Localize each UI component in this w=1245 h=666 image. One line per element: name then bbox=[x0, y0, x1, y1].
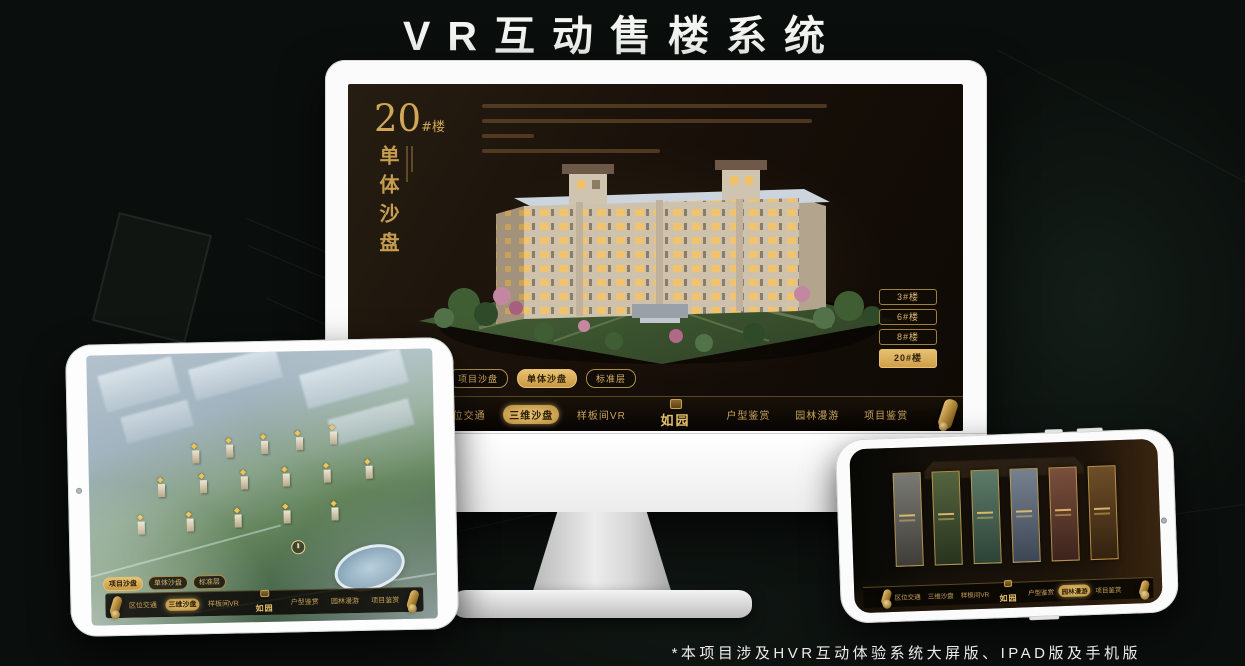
nav-item-showroom-vr[interactable]: 样板间VR bbox=[205, 597, 242, 610]
nav-item-unit-plans[interactable]: 户型鉴赏 bbox=[288, 596, 322, 609]
phone-screen: 区位交通 三维沙盘 样板间VR 如园 户型鉴赏 园林漫游 项目鉴赏 bbox=[849, 439, 1163, 614]
nav-item-3d-sandtable[interactable]: 三维沙盘 bbox=[503, 405, 559, 424]
floor-button-6[interactable]: 6#楼 bbox=[879, 309, 937, 325]
seal-icon bbox=[1004, 580, 1012, 587]
scroll-icon[interactable] bbox=[1138, 579, 1150, 597]
monitor-stand-base bbox=[452, 590, 752, 618]
brand-logo-text: 如园 bbox=[255, 603, 273, 613]
block-suffix: #楼 bbox=[421, 120, 445, 135]
nav-group-left: 区位交通 三维沙盘 样板间VR bbox=[890, 588, 993, 604]
gallery-card[interactable] bbox=[1010, 468, 1041, 563]
seal-icon bbox=[670, 399, 682, 409]
nav-group-left: 区位交通 三维沙盘 样板间VR bbox=[120, 597, 247, 612]
phone-power-button bbox=[1029, 615, 1059, 620]
phone-device: 区位交通 三维沙盘 样板间VR 如园 户型鉴赏 园林漫游 项目鉴赏 bbox=[835, 428, 1179, 624]
monitor-stand-neck bbox=[532, 512, 672, 594]
gallery-card[interactable] bbox=[1087, 465, 1118, 560]
nav-item-project-gallery[interactable]: 项目鉴赏 bbox=[858, 405, 914, 424]
nav-item-showroom-vr[interactable]: 样板间VR bbox=[958, 588, 993, 601]
nav-item-garden-tour[interactable]: 园林漫游 bbox=[328, 595, 362, 608]
gallery-card[interactable] bbox=[1048, 467, 1079, 562]
brand-logo-text: 如园 bbox=[999, 593, 1017, 604]
tablet-device: 项目沙盘 单体沙盘 标准层 区位交通 三维沙盘 样板间VR 如园 户型鉴赏 园林… bbox=[65, 337, 459, 637]
brand-logo-text: 如园 bbox=[660, 414, 690, 429]
nav-item-garden-tour[interactable]: 园林漫游 bbox=[1058, 584, 1090, 597]
poster-stage: VR互动售楼系统 20#楼 单体沙盘 bbox=[0, 0, 1245, 666]
gallery-card[interactable] bbox=[971, 469, 1002, 564]
phone-volume-button bbox=[1077, 428, 1103, 433]
floor-button-group: 3#楼 6#楼 8#楼 20#楼 bbox=[879, 289, 937, 368]
tab-standard-floor[interactable]: 标准层 bbox=[586, 369, 636, 388]
nav-group-right: 户型鉴赏 园林漫游 项目鉴赏 bbox=[708, 405, 928, 424]
block-vertical-title: 单体沙盘 bbox=[374, 145, 403, 263]
tab-standard-floor[interactable]: 标准层 bbox=[193, 575, 226, 590]
nav-item-3d-sandtable[interactable]: 三维沙盘 bbox=[165, 598, 199, 611]
nav-group-left: 区位交通 三维沙盘 样板间VR bbox=[424, 405, 644, 424]
camera-icon bbox=[76, 488, 82, 494]
phone-volume-button bbox=[1045, 429, 1063, 434]
floor-button-8[interactable]: 8#楼 bbox=[879, 329, 937, 345]
background-plaque bbox=[92, 212, 212, 344]
nav-group-right: 户型鉴赏 园林漫游 项目鉴赏 bbox=[281, 594, 408, 609]
tab-project-sandtable[interactable]: 项目沙盘 bbox=[448, 369, 508, 388]
floor-button-3[interactable]: 3#楼 bbox=[879, 289, 937, 305]
tablet-screen: 项目沙盘 单体沙盘 标准层 区位交通 三维沙盘 样板间VR 如园 户型鉴赏 园林… bbox=[86, 348, 438, 625]
nav-item-garden-tour[interactable]: 园林漫游 bbox=[789, 405, 845, 424]
footnote: *本项目涉及HVR互动体验系统大屏版、IPAD版及手机版 bbox=[672, 642, 1141, 663]
scene-gallery bbox=[893, 465, 1119, 567]
view-tab-group: 项目沙盘 单体沙盘 标准层 bbox=[448, 369, 636, 388]
scroll-icon[interactable] bbox=[937, 398, 960, 431]
nav-item-showroom-vr[interactable]: 样板间VR bbox=[571, 405, 632, 424]
block-number: 20 bbox=[374, 97, 421, 140]
tab-project-sandtable[interactable]: 项目沙盘 bbox=[103, 577, 143, 592]
tab-single-sandtable[interactable]: 单体沙盘 bbox=[148, 576, 188, 591]
nav-item-location[interactable]: 区位交通 bbox=[891, 590, 923, 603]
building-model-illustration bbox=[404, 136, 909, 376]
camera-icon bbox=[1161, 517, 1167, 523]
nav-item-project-gallery[interactable]: 项目鉴赏 bbox=[368, 594, 402, 607]
brand-logo[interactable]: 如园 bbox=[993, 579, 1024, 606]
page-title: VR互动售楼系统 bbox=[0, 2, 1245, 62]
tablet-view-tabs: 项目沙盘 单体沙盘 标准层 bbox=[103, 575, 226, 592]
nav-item-unit-plans[interactable]: 户型鉴赏 bbox=[720, 405, 776, 424]
gallery-card[interactable] bbox=[932, 471, 963, 566]
nav-item-3d-sandtable[interactable]: 三维沙盘 bbox=[925, 589, 957, 602]
nav-item-location[interactable]: 区位交通 bbox=[126, 599, 160, 612]
floor-button-20[interactable]: 20#楼 bbox=[879, 349, 937, 368]
nav-item-project-gallery[interactable]: 项目鉴赏 bbox=[1092, 583, 1124, 596]
seal-icon bbox=[260, 590, 269, 597]
brand-logo[interactable]: 如园 bbox=[247, 590, 282, 617]
gallery-card[interactable] bbox=[893, 472, 924, 567]
brand-logo[interactable]: 如园 bbox=[644, 399, 708, 430]
scroll-icon[interactable] bbox=[406, 589, 420, 611]
tab-single-sandtable[interactable]: 单体沙盘 bbox=[517, 369, 577, 388]
nav-item-unit-plans[interactable]: 户型鉴赏 bbox=[1025, 585, 1057, 598]
nav-group-right: 户型鉴赏 园林漫游 项目鉴赏 bbox=[1023, 583, 1126, 599]
